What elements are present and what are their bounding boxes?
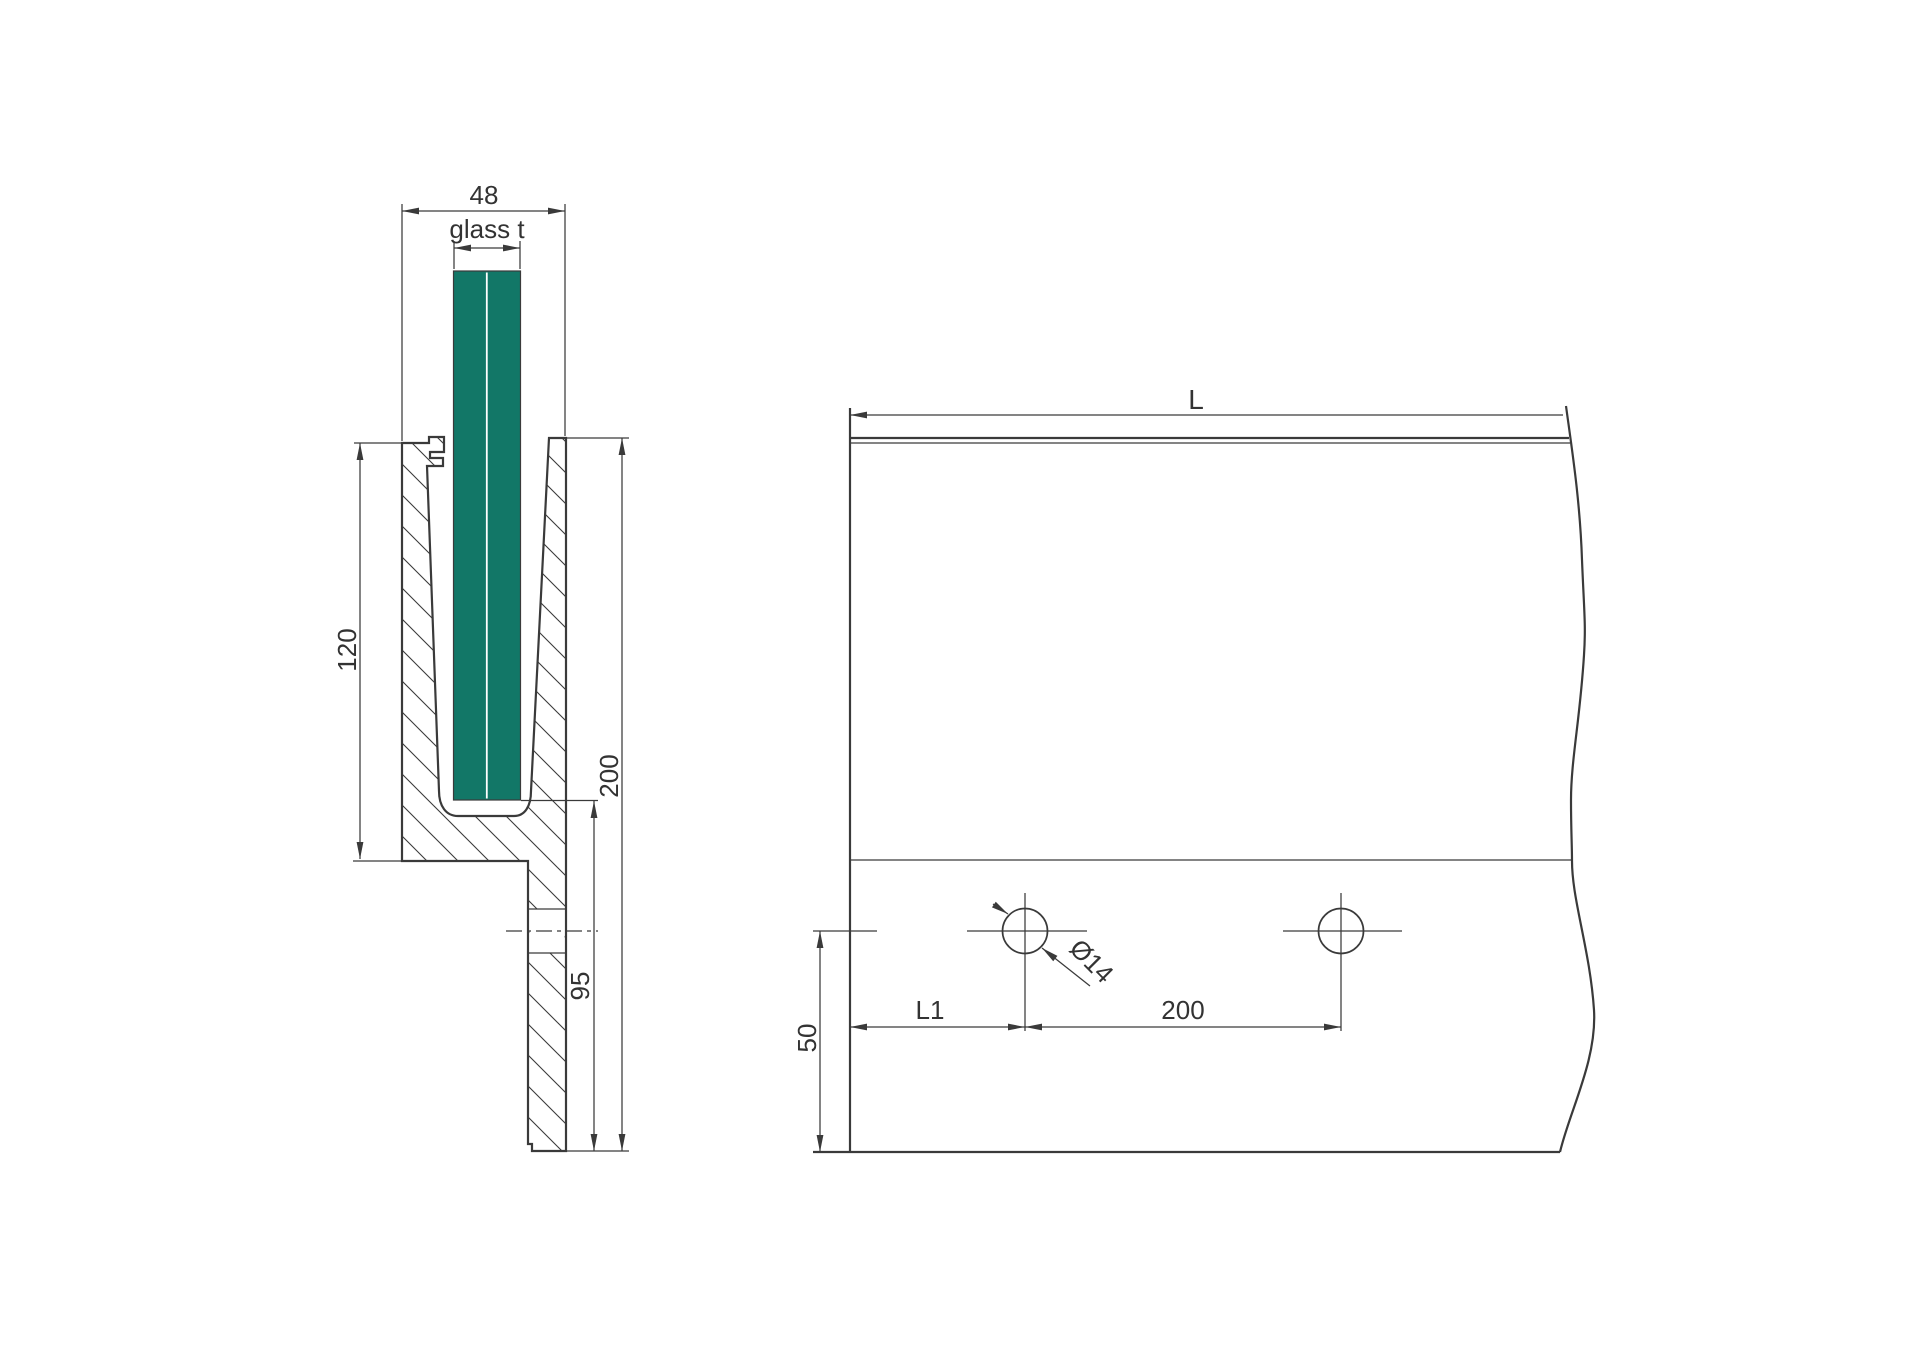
hole-spacing-label: 200 <box>1161 995 1204 1025</box>
hole-bottom-offset-label: 50 <box>792 1024 822 1053</box>
section-view <box>353 204 629 1151</box>
dim-hole-bottom-offset <box>813 931 877 1152</box>
break-line <box>1560 406 1594 1152</box>
hole-diameter-label: Ø14 <box>1064 933 1120 989</box>
end-hole-offset-label: L1 <box>916 995 945 1025</box>
hole-2 <box>1283 893 1402 1031</box>
technical-drawing-canvas: 48 glass t 120 95 200 L L1 200 50 Ø14 <box>0 0 1920 1357</box>
total-height-label: 200 <box>594 754 624 797</box>
hole-1 <box>967 893 1087 1031</box>
drop-height-label: 95 <box>565 972 595 1001</box>
glass-thickness-label: glass t <box>449 214 525 244</box>
elevation-view <box>813 406 1594 1152</box>
outer-width-label: 48 <box>470 180 499 210</box>
dim-glass-thickness <box>454 241 520 269</box>
balustrade-profile-drawing: 48 glass t 120 95 200 L L1 200 50 Ø14 <box>0 0 1920 1357</box>
front-height-label: 120 <box>332 628 362 671</box>
length-label: L <box>1188 384 1204 415</box>
